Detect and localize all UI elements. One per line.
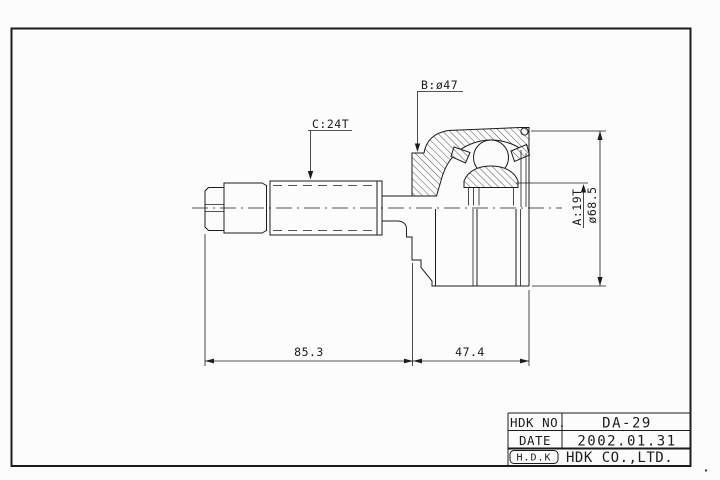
snap-ring-section <box>521 128 528 135</box>
company-name: HDK CO.,LTD. <box>566 450 673 466</box>
date-value: 2002.01.31 <box>577 434 676 450</box>
dimension-outer-diameter: ø68.5 <box>531 131 606 286</box>
hdk-no-label: HDK NO. <box>510 415 566 430</box>
cv-joint-views <box>192 128 562 287</box>
title-block: HDK NO. DA-29 DATE 2002.01.31 H.D.K HDK … <box>508 413 691 466</box>
drawing-sheet: B:ø47 C:24T A:19T ø68.5 85.3 47.4 <box>0 0 720 480</box>
date-label: DATE <box>519 433 551 448</box>
shaft-length-label: 85.3 <box>294 345 324 359</box>
hdk-logo-text: H.D.K <box>516 453 551 464</box>
inner-race-bore-lines <box>464 188 518 206</box>
hdk-no-value: DA-29 <box>602 416 652 432</box>
callout-outer-spline-label: B:ø47 <box>421 78 458 92</box>
outer-diameter-label: ø68.5 <box>585 186 599 223</box>
callout-shaft-spline: C:24T <box>308 117 352 180</box>
callout-inner-spline-label: A:19T <box>570 188 584 225</box>
cage-section-left <box>451 147 470 163</box>
shaft-stub <box>205 188 224 231</box>
callout-b-arrow <box>415 144 420 153</box>
housing-lower-profile <box>382 221 529 286</box>
stray-dot <box>705 469 707 471</box>
callout-c-arrow <box>308 171 313 180</box>
inner-race-section <box>464 166 518 188</box>
housing-contour-lines <box>436 209 521 286</box>
callout-shaft-spline-label: C:24T <box>312 117 349 131</box>
dimension-lengths: 85.3 47.4 <box>205 234 529 366</box>
cage-section-right <box>511 145 530 162</box>
callout-inner-spline: A:19T <box>516 183 588 228</box>
cv-joint-drawing: B:ø47 C:24T A:19T ø68.5 85.3 47.4 <box>0 0 720 480</box>
joint-length-label: 47.4 <box>455 345 485 359</box>
drawing-border <box>12 29 691 467</box>
